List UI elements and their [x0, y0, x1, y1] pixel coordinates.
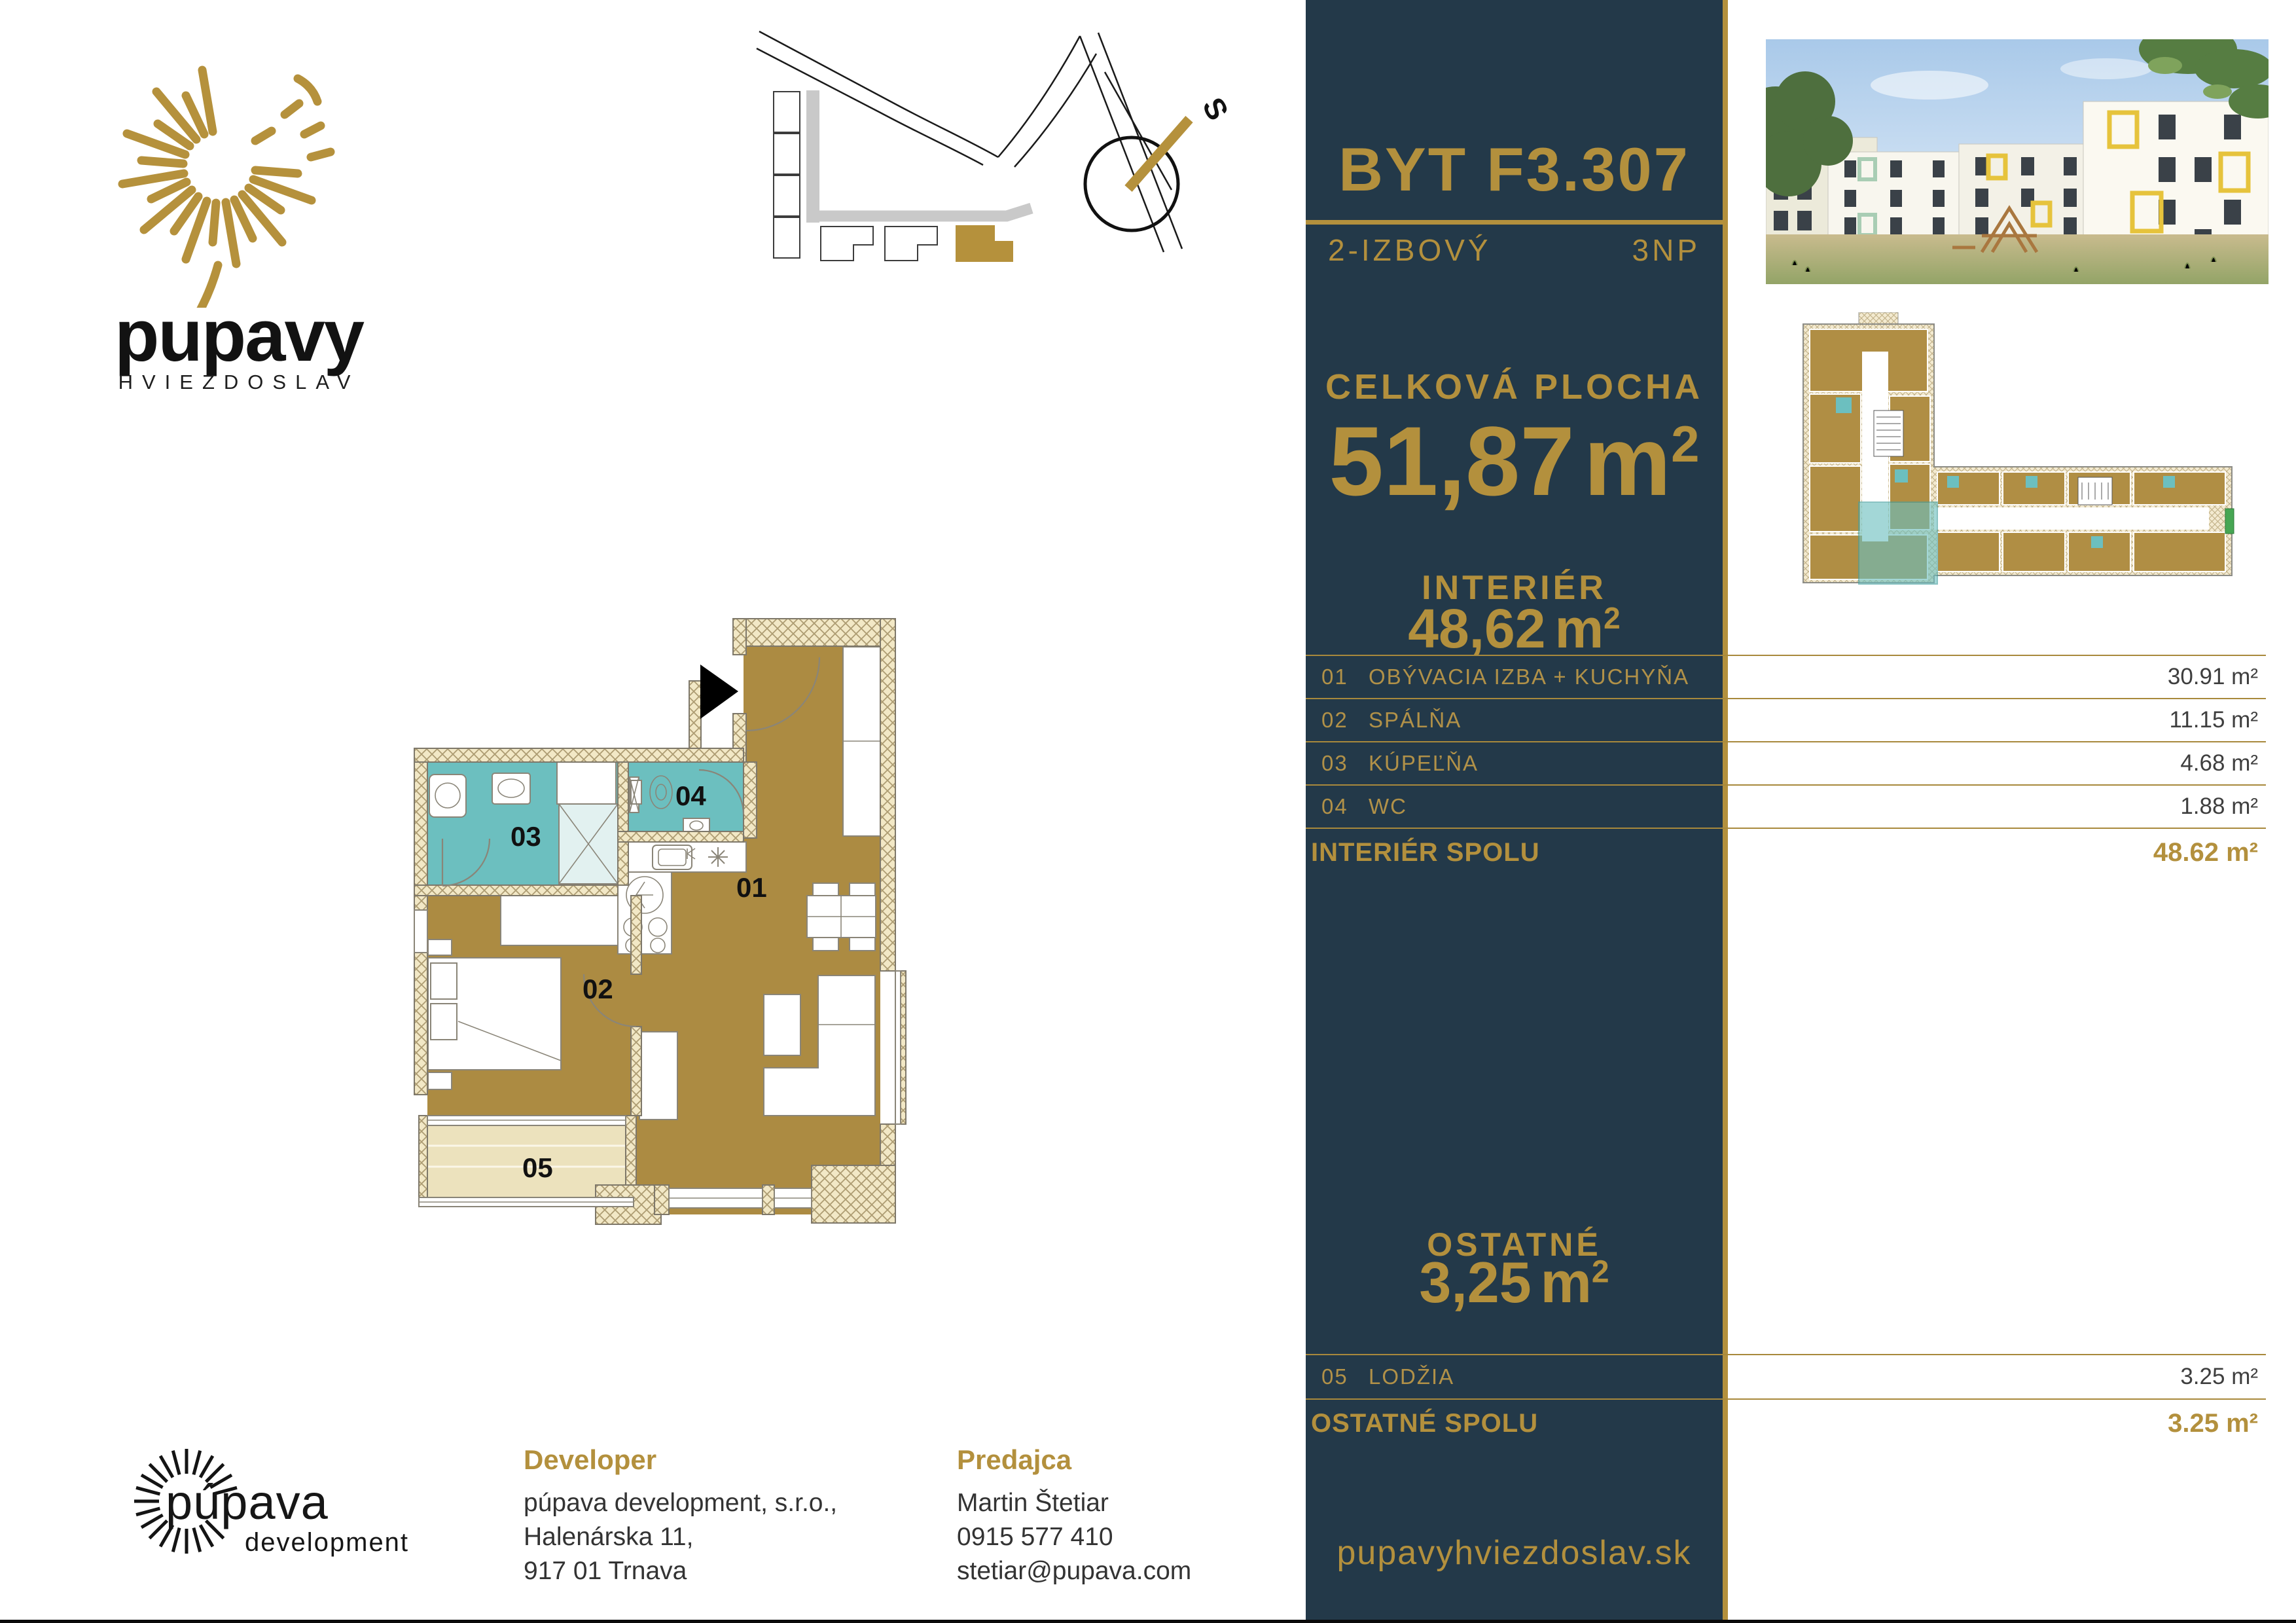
entrance-arrow-icon	[700, 665, 738, 719]
seller-phone[interactable]: 0915 577 410	[957, 1520, 1363, 1554]
brand-subtitle: HVIEZDOSLAV	[108, 371, 370, 394]
developer-street: Halenárska 11,	[524, 1520, 929, 1554]
developer-heading: Developer	[524, 1444, 929, 1476]
room-label-wc: 04	[675, 780, 706, 811]
table-row: 02 SPÁLŇA 11.15 m²	[1306, 698, 2266, 741]
interior-area-value: 48,62m2	[1306, 597, 1723, 661]
project-render-photo	[1766, 39, 2269, 284]
unit-title: BYT F3.307	[1306, 134, 1723, 205]
website-link[interactable]: pupavyhviezdoslav.sk	[1306, 1533, 1723, 1573]
page-bottom-rule	[0, 1620, 2296, 1623]
table-row: 01 OBÝVACIA IZBA + KUCHYŇA 30.91 m²	[1306, 655, 2266, 698]
developer-block: Developer púpava development, s.r.o., Ha…	[524, 1444, 929, 1588]
unit-meta: 2-IZBOVÝ 3NP	[1306, 230, 1723, 270]
other-area-value: 3,25m2	[1306, 1249, 1723, 1316]
total-area-value: 51,87m2	[1306, 405, 1723, 518]
seller-block: Predajca Martin Štetiar 0915 577 410 ste…	[957, 1444, 1363, 1588]
unit-floor: 3NP	[1632, 232, 1700, 268]
compass-label: S	[1196, 92, 1235, 126]
compass-needle	[1128, 119, 1189, 189]
other-total-row: OSTATNÉ SPOLU 3.25 m²	[1306, 1398, 2266, 1447]
unit-type: 2-IZBOVÝ	[1328, 232, 1492, 268]
seller-name: Martin Štetiar	[957, 1486, 1363, 1520]
brand-name: pupavy	[108, 293, 370, 378]
seller-email[interactable]: stetiar@pupava.com	[957, 1554, 1363, 1588]
room-label-loggia: 05	[522, 1152, 553, 1183]
table-row: 04 WC 1.88 m²	[1306, 784, 2266, 828]
seller-heading: Predajca	[957, 1444, 1363, 1476]
developer-logo-sub: development	[245, 1528, 409, 1558]
elevator-marker	[2225, 509, 2234, 534]
highlighted-unit	[1859, 502, 1937, 584]
site-map-highlighted-building	[956, 225, 1013, 262]
gold-divider	[1306, 220, 1723, 225]
developer-city: 917 01 Trnava	[524, 1554, 929, 1588]
room-label-bath: 03	[511, 821, 541, 852]
floor-overview-plan	[1797, 312, 2235, 589]
table-row: 03 KÚPEĽŇA 4.68 m²	[1306, 741, 2266, 784]
room-label-bedroom: 02	[583, 974, 613, 1004]
compass: S	[1067, 65, 1250, 255]
table-row: 05 LODŽIA 3.25 m²	[1306, 1354, 2266, 1398]
interior-total-row: INTERIÉR SPOLU 48.62 m²	[1306, 828, 2266, 876]
developer-company: púpava development, s.r.o.,	[524, 1486, 929, 1520]
total-area-label: CELKOVÁ PLOCHA	[1306, 367, 1723, 407]
floor-plan: 01 02 03 04 05	[406, 602, 916, 1244]
developer-logo-name: púpava	[166, 1474, 329, 1530]
brand-flower-logo	[108, 52, 344, 308]
room-label-living: 01	[736, 872, 767, 903]
brochure-page: pupavy HVIEZDOSLAV S	[0, 0, 2296, 1623]
